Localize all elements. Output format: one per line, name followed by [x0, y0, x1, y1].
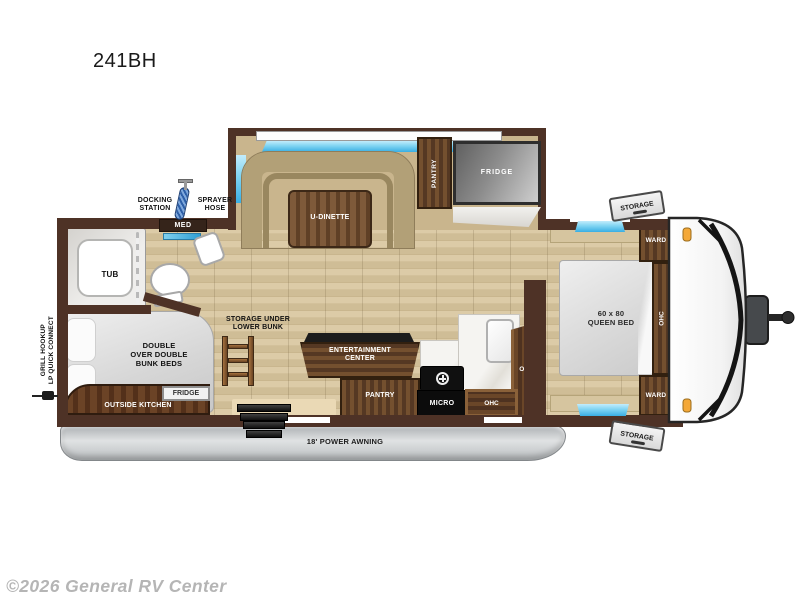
- kitchen-sink: [486, 319, 514, 363]
- pantry-cabinet: PANTRY: [417, 137, 452, 209]
- medicine-cabinet-label: MED: [174, 222, 191, 229]
- marker-light-icon: [683, 228, 691, 241]
- tv-icon: [304, 333, 414, 342]
- hitch-coupler-icon: [782, 312, 794, 324]
- window-opening: [484, 417, 522, 423]
- dealer-watermark: ©2026 General RV Center: [6, 576, 227, 597]
- ohc-lower-label: OHC: [484, 400, 498, 407]
- outside-fridge-label: FRIDGE: [173, 390, 199, 397]
- bunk-ladder-icon: [222, 336, 254, 386]
- door-side-wall: [57, 415, 683, 427]
- front-cap-and-hitch: [655, 208, 800, 432]
- front-cap: [669, 218, 746, 422]
- step: [243, 421, 285, 429]
- step: [246, 430, 282, 438]
- ladder-rung: [228, 344, 248, 349]
- bedroom-window-icon: [577, 404, 629, 416]
- refrigerator-label: FRIDGE: [453, 169, 541, 177]
- rear-wall: [57, 218, 68, 426]
- queen-bed-label: 60 x 80 QUEEN BED: [574, 309, 648, 327]
- bunk-beds-label: DOUBLE OVER DOUBLE BUNK BEDS: [100, 341, 218, 368]
- awning-label: 18' POWER AWNING: [280, 437, 410, 446]
- medicine-cabinet: MED: [159, 219, 207, 232]
- step: [237, 404, 291, 412]
- microwave-label: MICRO: [430, 400, 455, 407]
- outside-kitchen-label: OUTSIDE KITCHEN: [78, 402, 198, 410]
- ladder-rail: [248, 336, 254, 386]
- kitchen-pantry-label: PANTRY: [345, 392, 415, 400]
- bathroom-wall: [57, 305, 151, 314]
- u-dinette-label: U-DINETTE: [288, 214, 372, 222]
- propane-cover-icon: [745, 296, 768, 344]
- microwave: MICRO: [417, 390, 467, 417]
- rv-floorplan: 241BH 18' POWER AWNING U-DINETTE PANTRY …: [0, 0, 800, 600]
- outside-kitchen-fridge: FRIDGE: [162, 386, 210, 401]
- slideout-roof: [256, 131, 502, 141]
- step: [240, 413, 288, 421]
- bedroom-window-icon: [575, 221, 625, 232]
- floorplan-model-title: 241BH: [93, 50, 157, 73]
- tub: [77, 239, 133, 297]
- bedroom-divider-wall: [524, 280, 546, 420]
- marker-light-icon: [683, 399, 691, 412]
- entertainment-center-label: ENTERTAINMENT CENTER: [310, 347, 410, 364]
- ladder-rung: [228, 358, 248, 363]
- overhead-cabinet-kitchen-lower: OHC: [465, 389, 518, 417]
- grill-hookup-label: GRILL HOOKUP LP QUICK CONNECT: [40, 296, 56, 404]
- pillow: [66, 318, 96, 362]
- ladder-rung: [228, 372, 248, 377]
- storage-under-bunk-label: STORAGE UNDER LOWER BUNK: [218, 316, 298, 333]
- pantry-label: PANTRY: [431, 159, 438, 188]
- sprayer-hose-label: SPRAYER HOSE: [186, 197, 244, 214]
- entry-steps: [237, 404, 291, 438]
- lp-connect-plug-icon: [42, 391, 54, 400]
- burner-icon: [436, 372, 449, 385]
- shower-curtain-icon: [136, 232, 139, 304]
- sprayer-stem-icon: [184, 182, 187, 190]
- tub-label: TUB: [90, 270, 130, 280]
